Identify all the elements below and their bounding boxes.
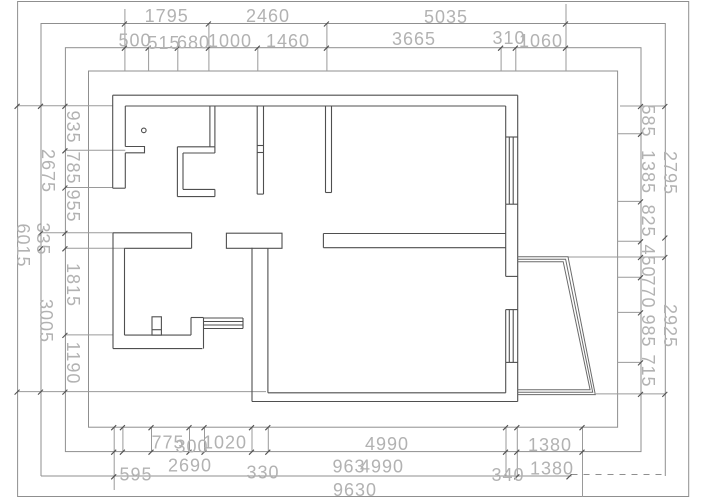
svg-text:785: 785 [63,151,83,184]
svg-text:2690: 2690 [168,456,212,476]
svg-text:1020: 1020 [203,433,247,453]
svg-text:585: 585 [638,104,658,137]
svg-text:935: 935 [63,110,83,143]
svg-text:2460: 2460 [246,6,290,26]
svg-text:1380: 1380 [528,435,572,455]
svg-text:1190: 1190 [63,342,83,385]
svg-text:1385: 1385 [638,150,658,194]
svg-text:2675: 2675 [38,149,58,193]
svg-text:825: 825 [638,204,658,237]
svg-text:1795: 1795 [145,6,189,26]
svg-text:1000: 1000 [208,31,252,51]
svg-text:985: 985 [638,314,658,347]
svg-text:3665: 3665 [392,29,436,49]
svg-text:6015: 6015 [13,223,33,267]
svg-text:715: 715 [638,354,658,387]
svg-text:335: 335 [33,222,53,255]
svg-text:5035: 5035 [424,7,468,27]
svg-text:515: 515 [147,33,180,53]
svg-text:9630: 9630 [333,480,377,500]
svg-text:2925: 2925 [660,304,680,348]
svg-text:1380: 1380 [530,459,574,479]
svg-text:340: 340 [491,465,524,485]
svg-text:4990: 4990 [360,457,404,477]
svg-text:4990: 4990 [365,434,409,454]
svg-text:330: 330 [246,463,279,483]
svg-text:450: 450 [638,244,658,277]
svg-text:2795: 2795 [660,151,680,195]
svg-text:1060: 1060 [519,31,563,51]
svg-text:1815: 1815 [63,263,83,307]
svg-text:595: 595 [119,465,152,485]
svg-text:680: 680 [177,33,210,53]
svg-text:770: 770 [638,275,658,308]
svg-text:955: 955 [63,189,83,222]
svg-text:1460: 1460 [266,31,310,51]
svg-text:3005: 3005 [36,299,56,343]
